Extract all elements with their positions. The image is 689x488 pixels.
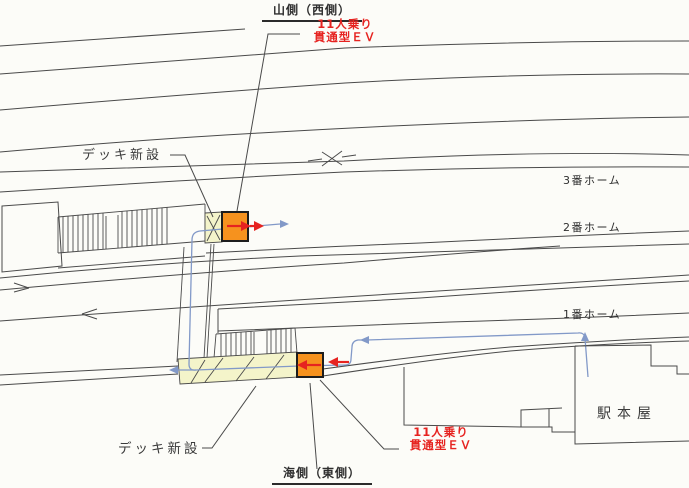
walkway-outline xyxy=(404,367,521,427)
ev-direction-arrows xyxy=(227,221,349,370)
deck-new-lower-label: デッキ新設 xyxy=(118,437,201,457)
overpass-landing-box xyxy=(2,202,62,272)
ev-upper-label: 11人乗り 貫通型ＥＶ xyxy=(303,18,387,44)
station-building-outline xyxy=(521,345,689,444)
leader-ev-lower xyxy=(320,380,399,449)
track-crossover-icon xyxy=(308,151,356,166)
station-plan-drawing: 山側（西側） 11人乗り 貫通型ＥＶ デッキ新設 3番ホーム 2番ホーム 1番ホ… xyxy=(0,0,689,488)
leader-deck-upper xyxy=(170,155,213,217)
leader-lines xyxy=(170,34,399,469)
ev-lower-label: 11人乗り 貫通型ＥＶ xyxy=(398,426,484,452)
platform-1-label: 1番ホーム xyxy=(563,306,621,322)
leader-ev-upper xyxy=(237,34,300,211)
flow-arrow-left-deck-icon xyxy=(169,366,178,374)
leader-seaside xyxy=(310,383,317,469)
flow-arrowheads xyxy=(169,220,589,374)
station-building-label: 駅本屋 xyxy=(597,403,657,423)
flow-arrow-left-icon xyxy=(360,336,369,344)
new-deck-upper xyxy=(205,212,222,243)
deck-new-upper-label: デッキ新設 xyxy=(82,144,162,163)
platform-2-label: 2番ホーム xyxy=(563,219,621,235)
ev-upper-label-line2: 貫通型ＥＶ xyxy=(303,31,387,44)
platform-3-label: 3番ホーム xyxy=(563,172,621,188)
flow-arrow-right-icon xyxy=(280,220,289,228)
ev-lower-label-line2: 貫通型ＥＶ xyxy=(398,439,484,452)
orientation-label-sea-side: 海側（東側） xyxy=(272,464,372,485)
plan-linework xyxy=(0,0,689,488)
leader-deck-lower xyxy=(202,386,256,448)
track-direction-arrow-right-icon xyxy=(14,283,29,292)
